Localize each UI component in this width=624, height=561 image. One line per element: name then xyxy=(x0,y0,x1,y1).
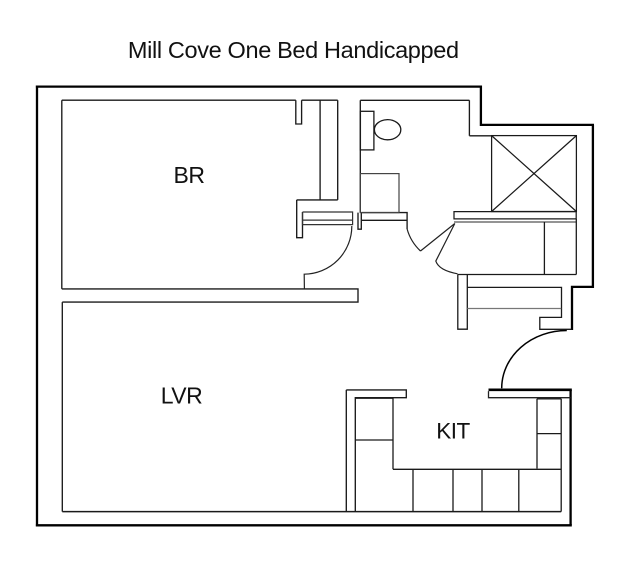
svg-text:LVR: LVR xyxy=(161,383,203,409)
svg-text:Mill Cove One Bed Handicapped: Mill Cove One Bed Handicapped xyxy=(128,37,459,63)
svg-text:BR: BR xyxy=(174,162,205,188)
svg-text:KIT: KIT xyxy=(436,418,470,443)
